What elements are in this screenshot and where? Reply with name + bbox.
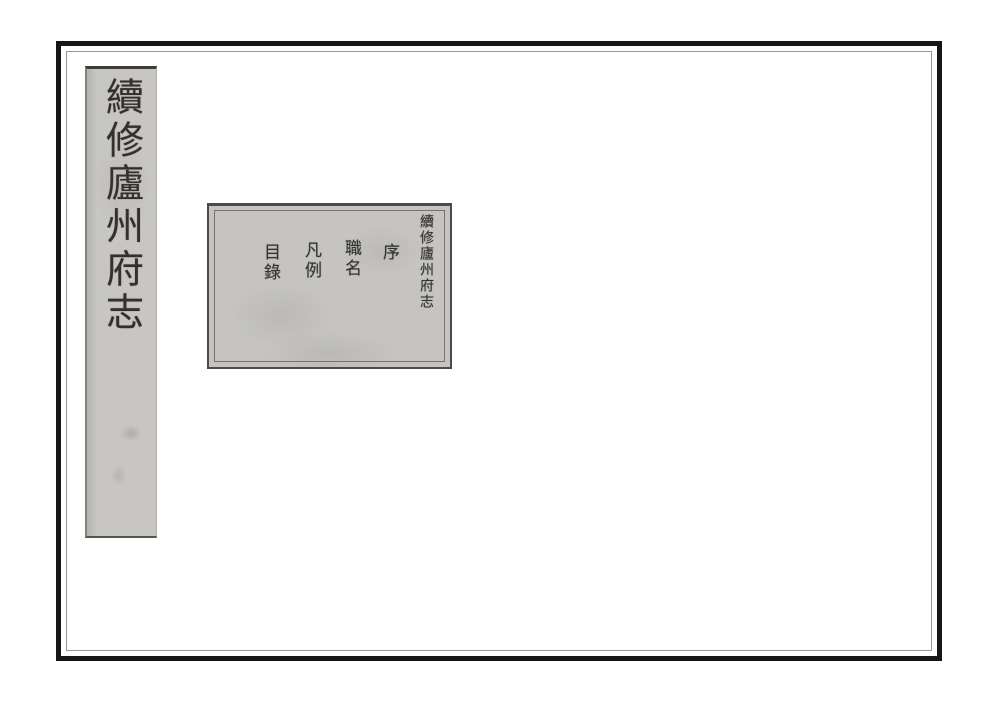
spine-title-text: 續修廬州府志 xyxy=(103,69,141,536)
toc-entry-table-of-contents: 目錄 xyxy=(261,243,278,283)
title-page-inner-rule xyxy=(214,210,445,362)
toc-entry-preface: 序 xyxy=(380,243,397,263)
scan-inner-rule xyxy=(66,51,932,651)
book-spine-strip: 續修廬州府志 xyxy=(85,66,157,538)
toc-entry-editorial-notes: 凡例 xyxy=(302,241,319,281)
scan-border-frame xyxy=(56,41,942,661)
scanned-book-page: { "scan": { "background_color": "#ffffff… xyxy=(0,0,1000,706)
title-page-book-title: 續修廬州府志 xyxy=(419,214,433,310)
toc-entry-officials-list: 職名 xyxy=(342,239,359,279)
title-page-leaf: 續修廬州府志 序 職名 凡例 目錄 xyxy=(207,203,452,369)
